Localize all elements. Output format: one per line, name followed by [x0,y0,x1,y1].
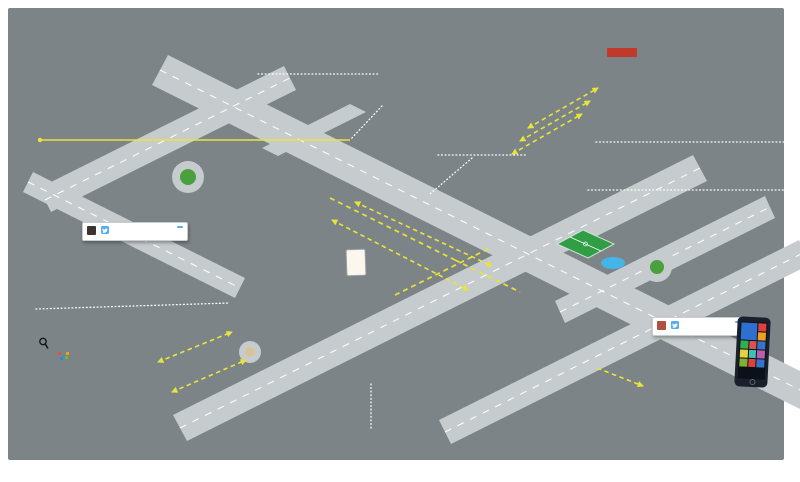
twitter-bird-icon[interactable] [671,321,679,329]
avatar [657,321,666,330]
opendata-logo [36,337,51,350]
smart-city-infographic [0,0,800,482]
tweet-card-air [652,317,746,336]
pond [601,257,625,269]
smartphone[interactable] [734,316,771,388]
ppc-building-sign [607,48,637,57]
city-map-illustration [0,0,800,482]
magnifier-icon [38,337,49,350]
tweet-card-velodi [82,222,188,241]
twitter-bird-icon[interactable] [101,226,109,234]
opendata-pixels [58,352,74,360]
avatar [87,226,96,235]
follow-button[interactable] [177,226,183,228]
jei-billboard [346,249,367,277]
phone-app-tiles [738,321,768,379]
roads [23,55,800,444]
